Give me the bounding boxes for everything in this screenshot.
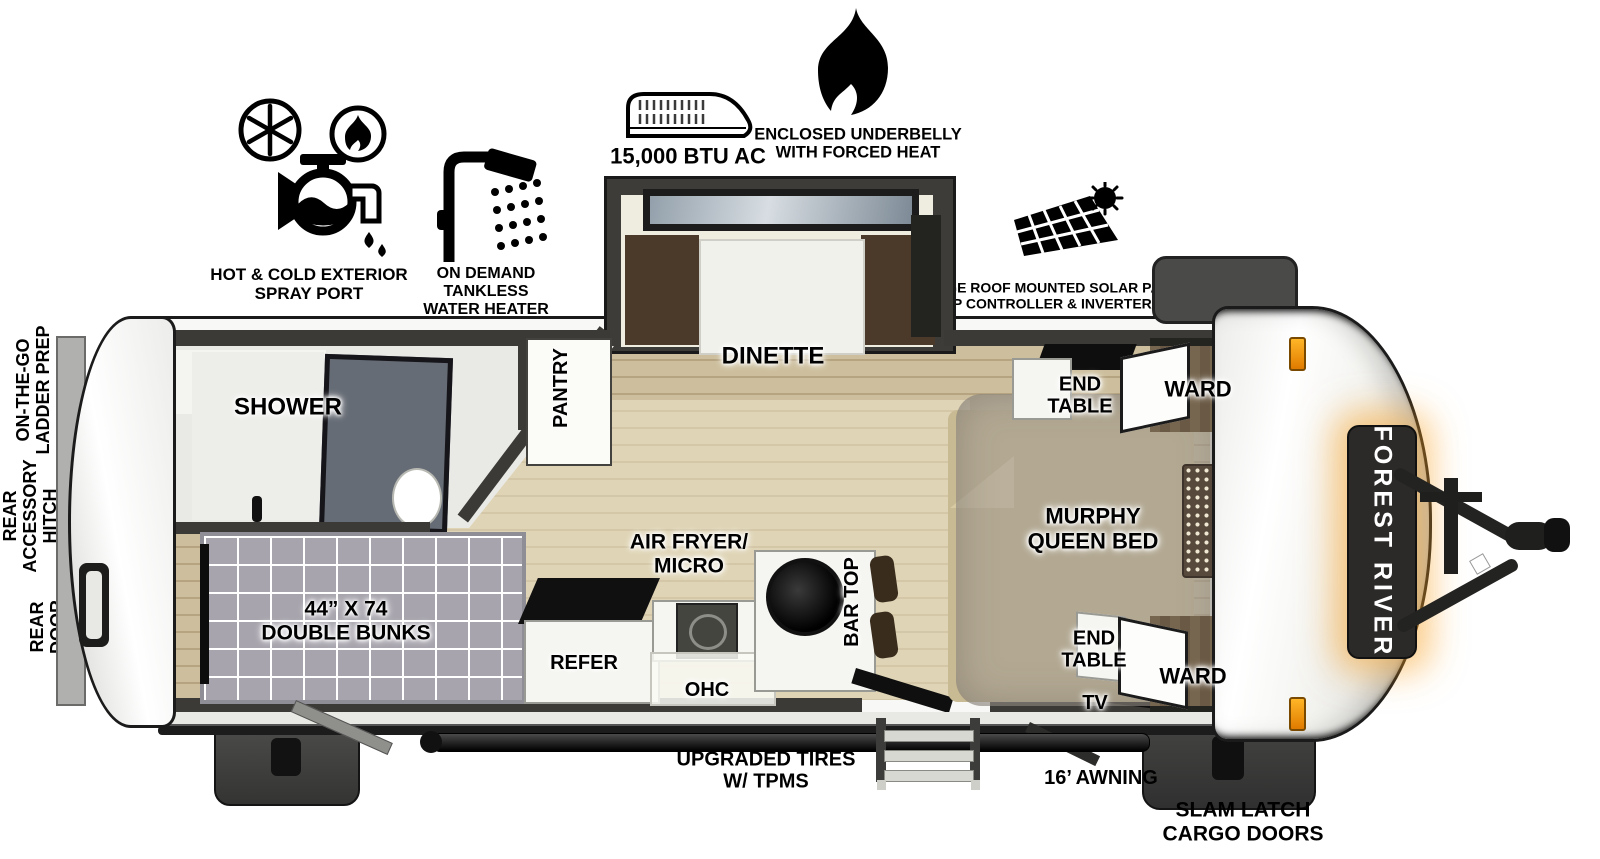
end-table-top-label: END TABLE — [1047, 374, 1112, 419]
bar-top-label: BAR TOP — [841, 557, 863, 647]
tv-label: TV — [1082, 692, 1108, 714]
awning-label: 16’ AWNING — [1044, 767, 1158, 789]
rv-floorplan-diagram: HOT & COLD EXTERIOR SPRAY PORT ON DEMAND… — [0, 0, 1600, 859]
cooktop — [676, 603, 738, 659]
ladder-prep-label: ON-THE-GO LADDER PREP — [13, 325, 53, 454]
shower-head-icon — [435, 136, 550, 266]
bath-faucet-icon — [252, 496, 262, 522]
dinette-bench-left — [625, 235, 699, 345]
rear-door-handle — [79, 563, 109, 647]
faucet-hot-cold-icon — [228, 92, 418, 257]
ac-label: 15,000 BTU AC — [610, 145, 766, 170]
murphy-bed-label: MURPHY QUEEN BED — [1028, 504, 1159, 553]
marker-light-icon — [1289, 337, 1306, 371]
entry-steps — [876, 718, 980, 790]
slideout-side-window — [911, 215, 941, 337]
step-foot — [971, 780, 980, 790]
forest-river-badge-text: FOREST RIVER — [1368, 426, 1397, 659]
tongue-jack-handle — [1420, 492, 1482, 502]
water-heater-label: ON DEMAND TANKLESS WATER HEATER — [423, 265, 549, 319]
cargo-doors-label: SLAM LATCH CARGO DOORS — [1162, 798, 1323, 845]
pantry-label: PANTRY — [550, 348, 572, 428]
front-cargo-latch-icon — [1212, 736, 1244, 780]
hitch-coupler-tip — [1544, 518, 1570, 552]
step-tread — [884, 730, 974, 742]
ward-top-label: WARD — [1164, 378, 1231, 403]
slideout-window-glass — [650, 196, 912, 224]
underbelly-label: ENCLOSED UNDERBELLY WITH FORCED HEAT — [754, 126, 962, 163]
end-table-bottom-label: END TABLE — [1061, 628, 1126, 673]
rear-hitch-label: REAR ACCESSORY HITCH — [0, 459, 60, 572]
step-tread — [884, 770, 974, 782]
step-foot — [877, 780, 886, 790]
dinette-label: DINETTE — [722, 344, 825, 371]
rear-cargo-latch-icon — [271, 738, 301, 776]
refer-top — [518, 578, 660, 624]
dinette-table — [699, 239, 865, 355]
refer-label: REFER — [550, 652, 618, 674]
bar-sink — [766, 558, 844, 636]
ward-bottom-label: WARD — [1159, 665, 1226, 690]
ohc-label: OHC — [685, 679, 729, 701]
tires-label: UPGRADED TIRES W/ TPMS — [677, 749, 856, 794]
bunk-ladder-rail — [200, 544, 209, 684]
shower-pan — [192, 352, 324, 520]
solar-panel-icon — [1002, 182, 1127, 277]
dinette-slideout — [604, 176, 956, 354]
shower-label: SHOWER — [234, 395, 342, 422]
slideout-window — [643, 189, 919, 231]
marker-light-icon — [1289, 697, 1306, 731]
front-cap: FOREST RIVER — [1212, 306, 1432, 742]
air-fryer-label: AIR FRYER/ MICRO — [630, 530, 748, 577]
bunks-label: 44” X 74 DOUBLE BUNKS — [261, 597, 430, 644]
spray-port-label: HOT & COLD EXTERIOR SPRAY PORT — [210, 265, 407, 303]
awning-roller-endcap — [420, 731, 442, 753]
step-tread — [884, 750, 974, 762]
cooktop-burner-icon — [689, 614, 727, 650]
rear-door-handle-inner — [86, 571, 102, 639]
toilet — [392, 468, 442, 528]
rooftop-ac-icon — [618, 84, 758, 142]
flame-icon — [812, 8, 904, 120]
